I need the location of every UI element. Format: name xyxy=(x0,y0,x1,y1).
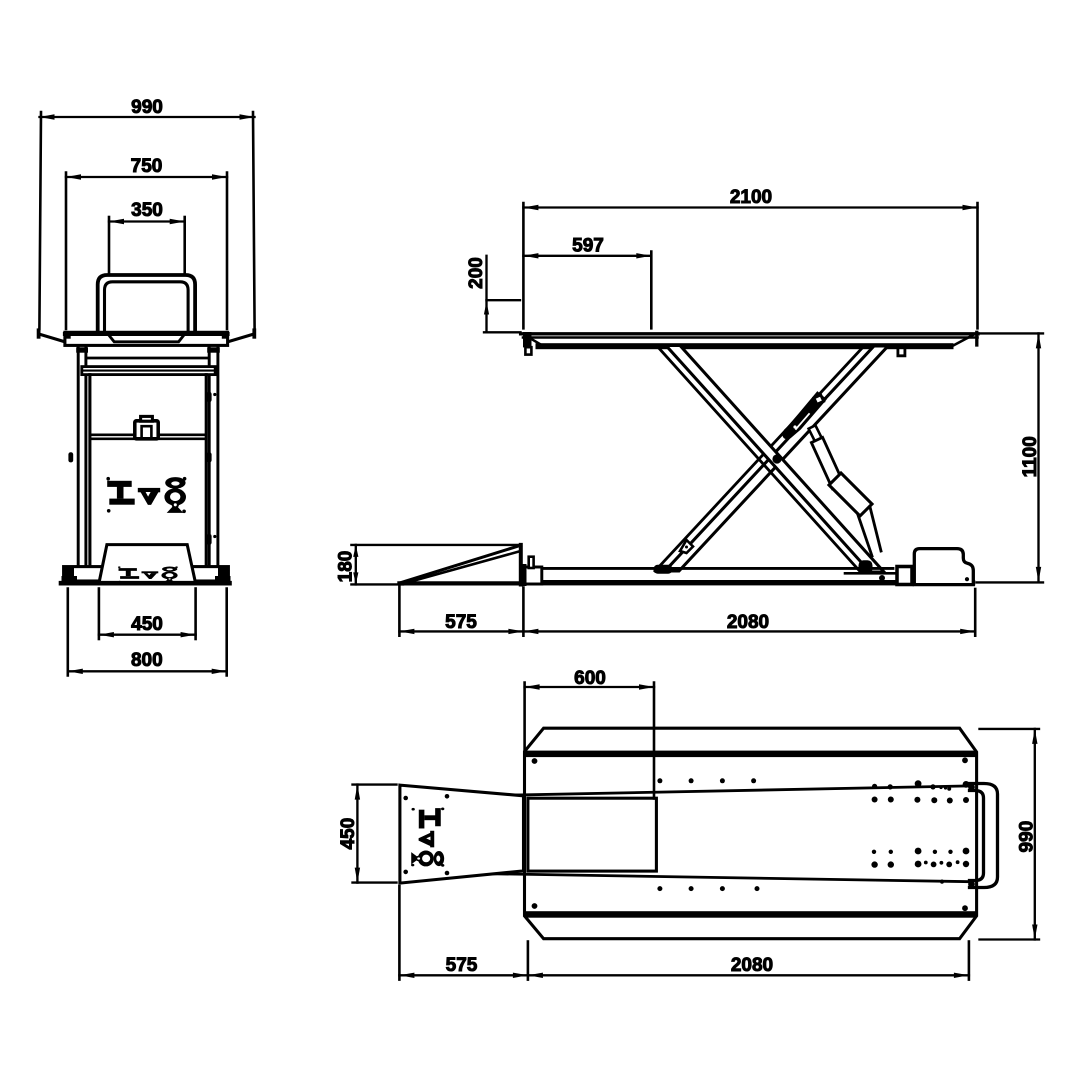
svg-text:180: 180 xyxy=(335,551,356,583)
svg-text:1100: 1100 xyxy=(1020,436,1041,477)
svg-text:2100: 2100 xyxy=(730,187,772,208)
svg-text:750: 750 xyxy=(131,156,163,177)
svg-text:990: 990 xyxy=(1017,821,1038,853)
svg-text:800: 800 xyxy=(131,650,163,671)
svg-text:450: 450 xyxy=(338,818,359,850)
svg-text:597: 597 xyxy=(572,236,604,257)
svg-text:350: 350 xyxy=(131,200,163,221)
svg-text:450: 450 xyxy=(131,614,163,635)
svg-text:990: 990 xyxy=(131,97,163,118)
svg-text:2080: 2080 xyxy=(727,612,769,633)
svg-text:2080: 2080 xyxy=(731,955,773,976)
svg-text:200: 200 xyxy=(466,257,487,289)
svg-text:575: 575 xyxy=(446,955,478,976)
svg-text:600: 600 xyxy=(574,668,606,689)
svg-text:575: 575 xyxy=(445,612,477,633)
